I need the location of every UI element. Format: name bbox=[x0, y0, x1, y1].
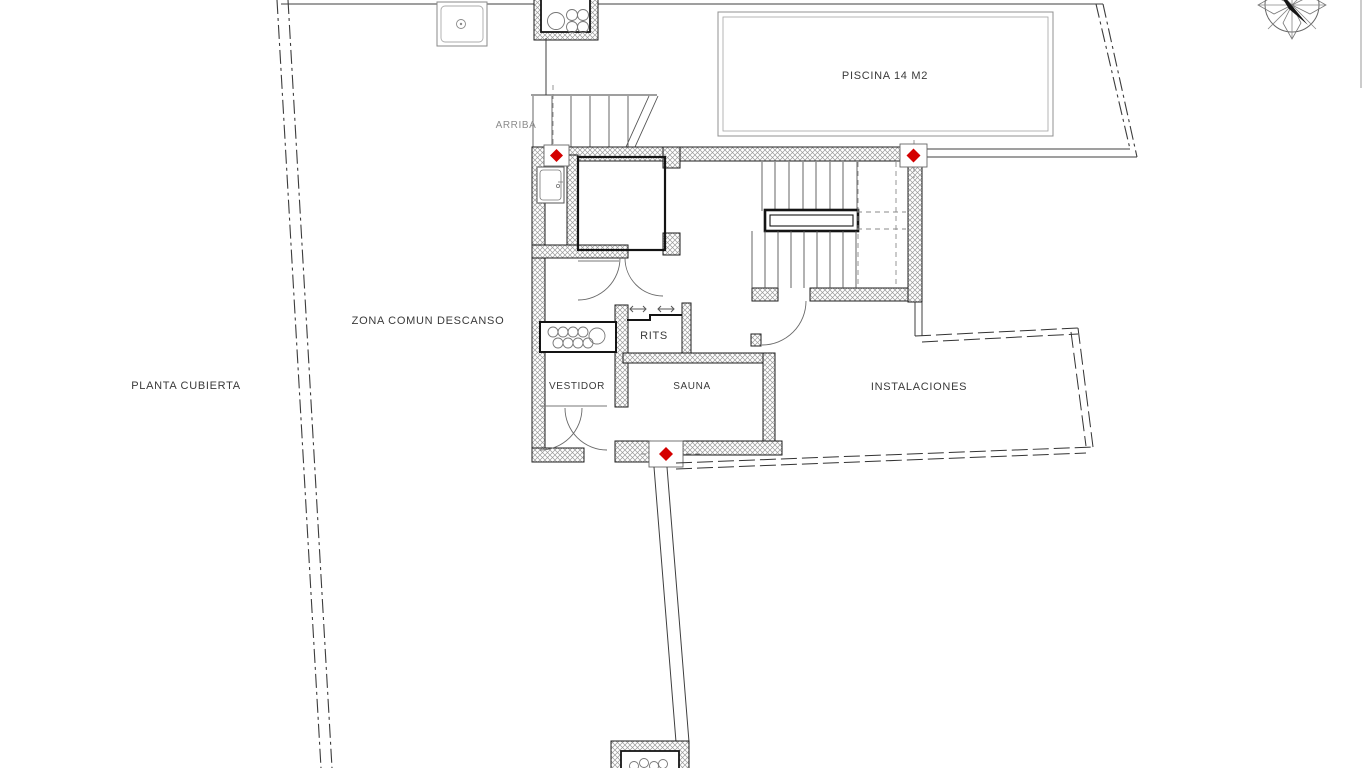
north-compass-icon bbox=[1258, 0, 1326, 39]
room-label-sauna: SAUNA bbox=[673, 381, 710, 392]
level-marker-diamond-icon bbox=[544, 145, 569, 166]
wall-stair-right bbox=[908, 166, 922, 302]
wall-sink-room bbox=[567, 155, 578, 248]
property-boundary bbox=[277, 0, 1361, 768]
storage-room bbox=[578, 157, 665, 250]
door-arc bbox=[762, 301, 806, 345]
wall-bottom-corner bbox=[615, 441, 650, 462]
floor-plan-page: PISCINA 14 M2 ARRIBA bbox=[0, 0, 1366, 768]
room-label-rits: RITS bbox=[640, 330, 668, 342]
door-arc bbox=[540, 406, 607, 450]
wall-rits-right bbox=[682, 303, 691, 353]
room-label-piscina: PISCINA 14 M2 bbox=[842, 70, 928, 82]
walls bbox=[532, 147, 922, 462]
vent-arrows-icon bbox=[630, 306, 674, 312]
wall-stair-bottom bbox=[810, 288, 920, 301]
shower-tray bbox=[437, 2, 487, 46]
wall-door-strike bbox=[751, 334, 761, 346]
wall-bottom-left bbox=[532, 448, 584, 462]
stair-landing-beam bbox=[765, 210, 858, 231]
wall-sauna-right bbox=[763, 353, 775, 447]
gas-bottles-box bbox=[540, 322, 616, 352]
wall-sauna-top bbox=[623, 353, 775, 363]
sink-fixture bbox=[537, 167, 564, 203]
rits-room: RITS bbox=[627, 315, 682, 342]
room-label-instalaciones: INSTALACIONES bbox=[871, 381, 967, 393]
wall-sauna-bottom bbox=[683, 441, 782, 455]
page-title: PLANTA CUBIERTA bbox=[131, 380, 241, 392]
wall-horizontal bbox=[532, 245, 628, 258]
floor-plan-canvas: PISCINA 14 M2 ARRIBA bbox=[0, 0, 1366, 768]
room-label-vestidor: VESTIDOR bbox=[549, 381, 605, 392]
area-label-zona-comun: ZONA COMUN DESCANSO bbox=[352, 315, 505, 327]
wall-top bbox=[532, 147, 910, 161]
bottom-equipment-box bbox=[611, 741, 689, 768]
door-arc bbox=[578, 258, 663, 300]
pool: PISCINA 14 M2 bbox=[718, 12, 1053, 136]
walkway bbox=[654, 467, 689, 742]
annotation-arriba: ARRIBA bbox=[496, 120, 537, 131]
rooftop-equipment-box bbox=[534, 0, 598, 40]
main-staircase bbox=[752, 162, 906, 288]
wall-stair-bottom bbox=[752, 288, 778, 301]
